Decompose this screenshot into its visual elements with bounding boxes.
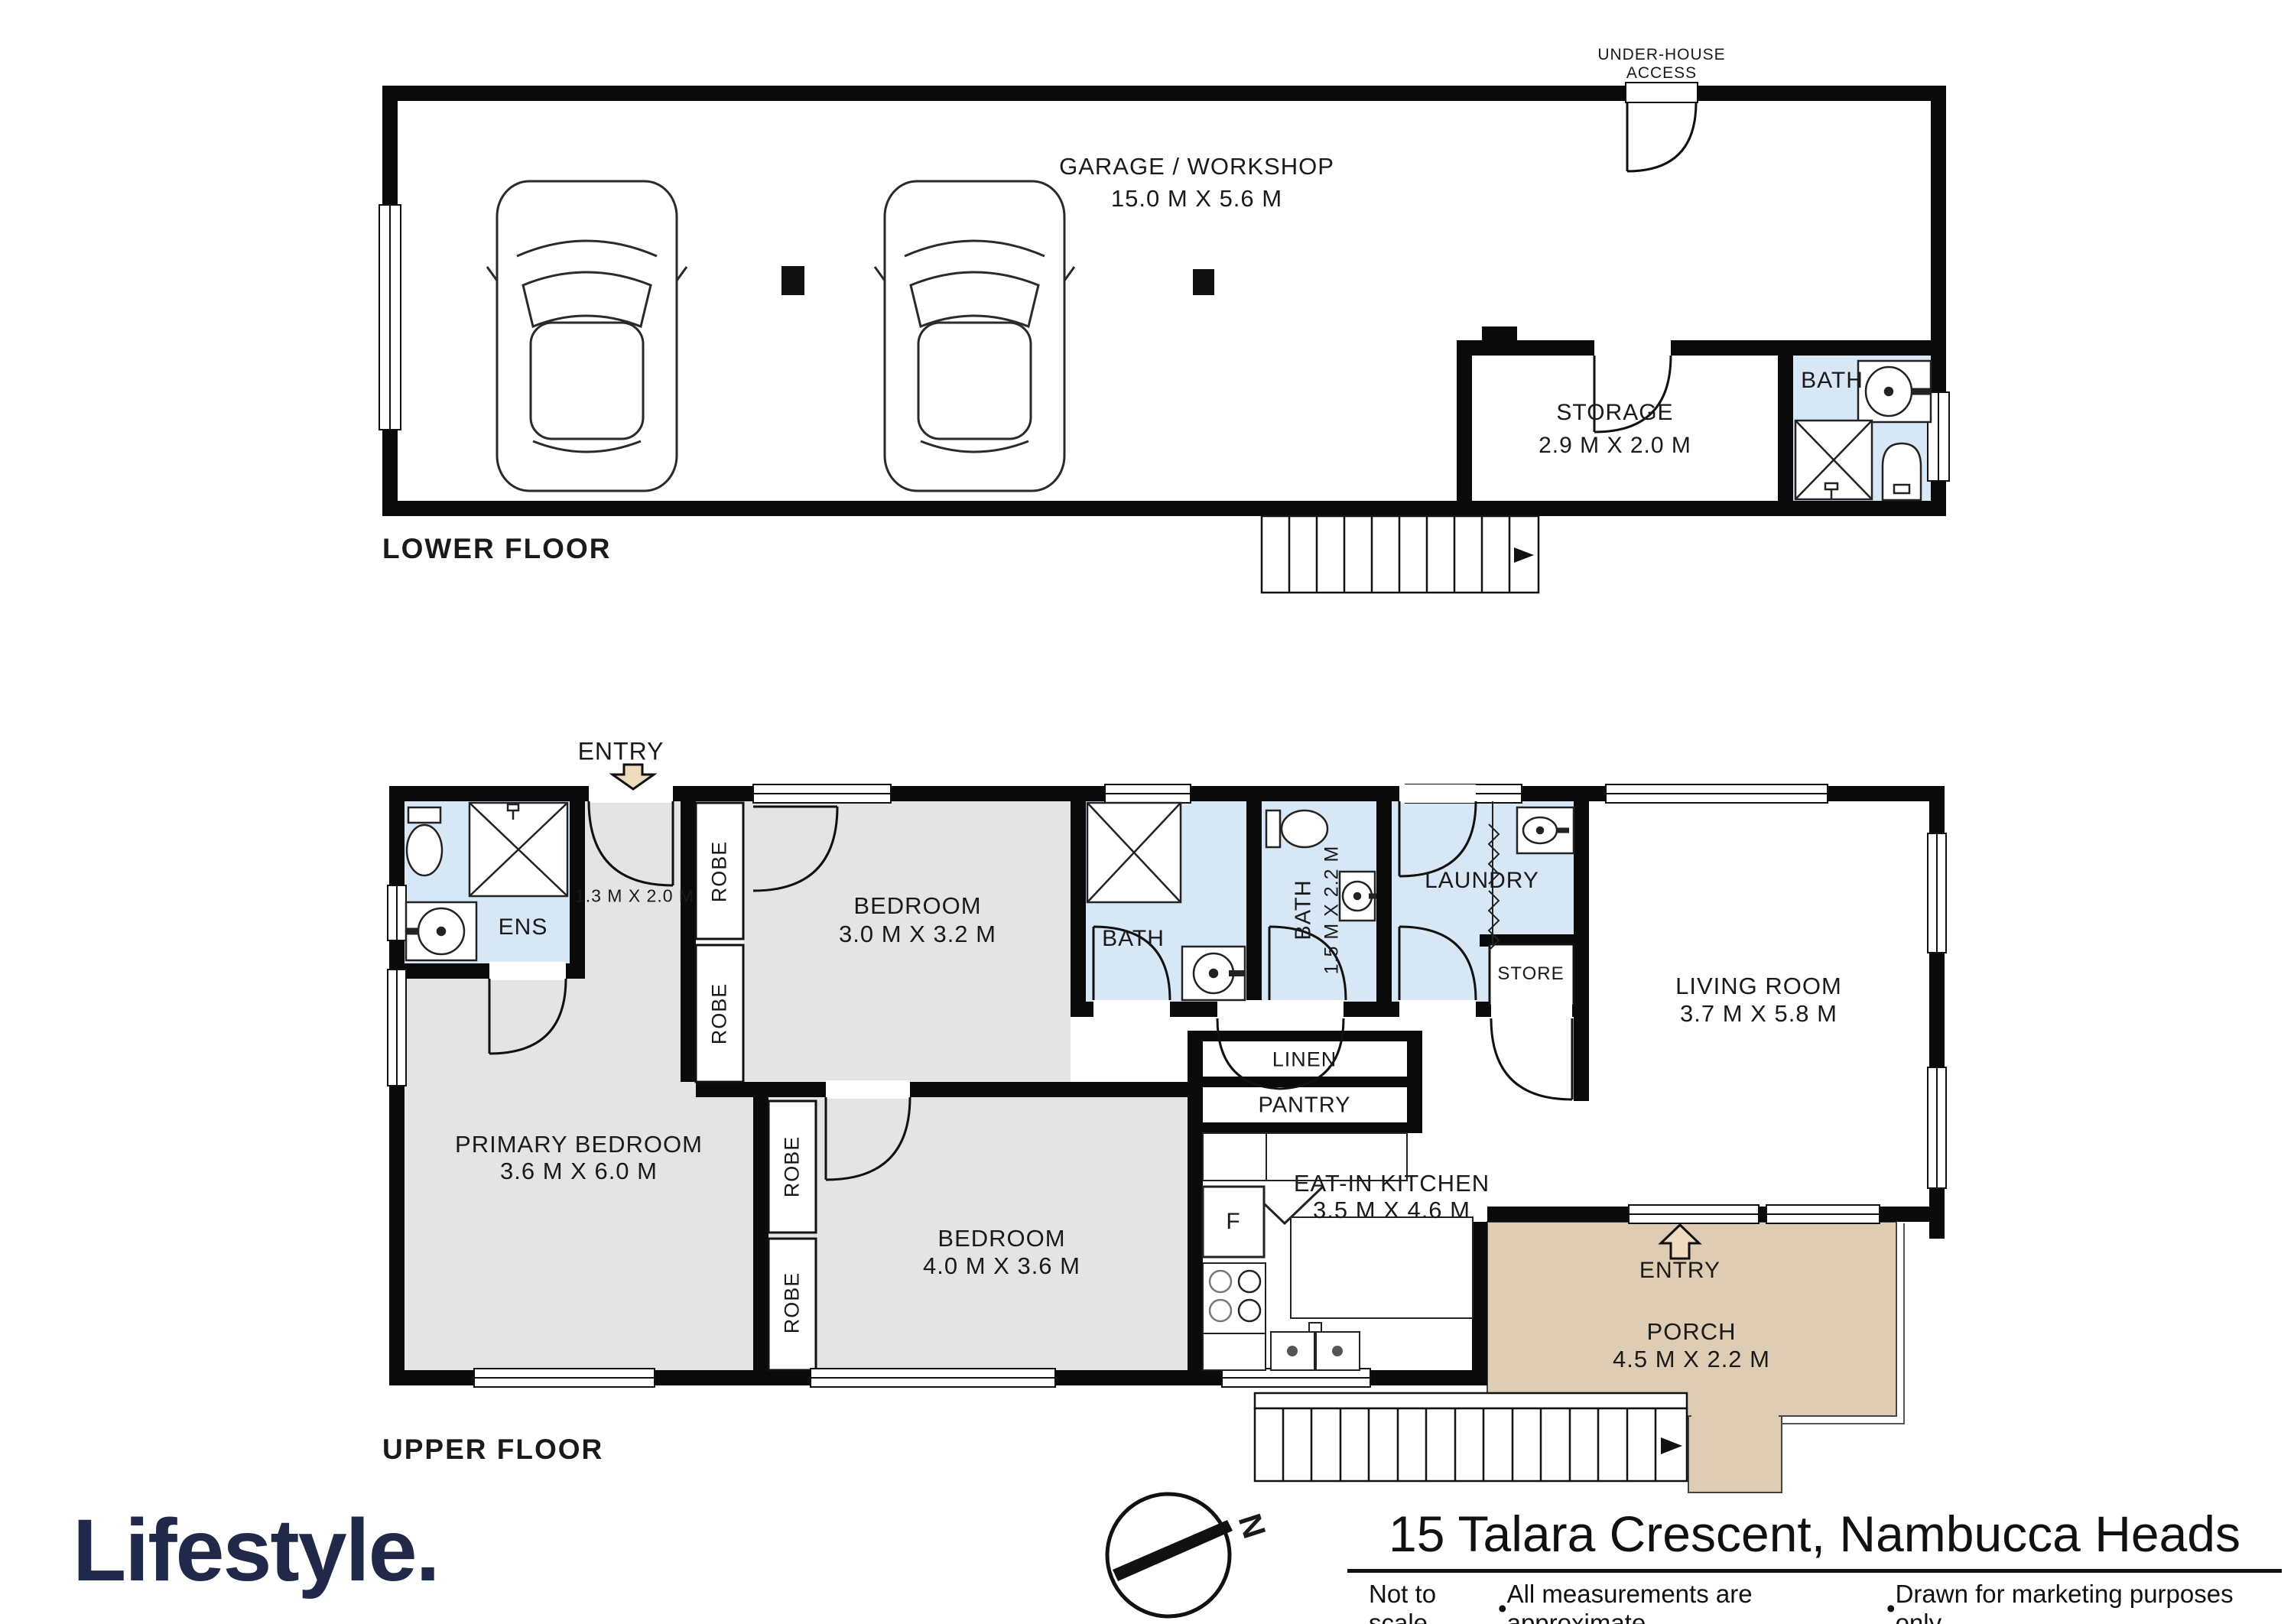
sink-icon bbox=[1517, 807, 1574, 853]
toilet-icon bbox=[1266, 810, 1327, 847]
garage-post bbox=[1193, 269, 1214, 295]
footer-divider bbox=[1347, 1569, 2282, 1573]
brand-logo: Lifestyle. bbox=[73, 1500, 439, 1601]
bath2-label: BATH bbox=[1292, 879, 1317, 940]
bedroom2-dims-label: 4.0 M X 3.6 M bbox=[923, 1252, 1080, 1280]
disclaimer-item: Drawn for marketing purposes only bbox=[1896, 1580, 2275, 1624]
laundry-label: LAUNDRY bbox=[1425, 868, 1539, 894]
bedroom2-name-label: BEDROOM bbox=[937, 1225, 1065, 1252]
upper-floor-plan bbox=[388, 765, 1946, 1492]
entry-label: ENTRY bbox=[578, 738, 664, 766]
porch-walkway bbox=[1688, 1416, 1782, 1492]
porch-dims-label: 4.5 M X 2.2 M bbox=[1613, 1346, 1770, 1373]
porch-walkway-join bbox=[1691, 1411, 1779, 1421]
stairs-icon bbox=[1262, 516, 1539, 593]
stairs-icon bbox=[1255, 1393, 1687, 1481]
lower-floor-title: LOWER FLOOR bbox=[382, 533, 611, 565]
storage-name-label: STORAGE bbox=[1556, 400, 1673, 426]
sink-icon bbox=[1182, 947, 1245, 1000]
car-icon bbox=[875, 181, 1074, 491]
under-house-label-line2: ACCESS bbox=[1626, 64, 1697, 83]
car-icon bbox=[487, 181, 687, 491]
bullet-separator: • bbox=[1886, 1594, 1896, 1623]
fridge-label: F bbox=[1226, 1209, 1240, 1235]
kitchen-name-label: EAT-IN KITCHEN bbox=[1294, 1170, 1490, 1197]
kitchen-sink-icon bbox=[1271, 1323, 1360, 1370]
upper-floor-title: UPPER FLOOR bbox=[382, 1434, 603, 1466]
entry-hall-dims-label: 1.3 M X 2.0 M bbox=[575, 886, 694, 907]
sink-icon bbox=[406, 902, 476, 960]
porch-entry-label: ENTRY bbox=[1639, 1258, 1720, 1284]
primary-bedroom-dims-label: 3.6 M X 6.0 M bbox=[500, 1158, 658, 1185]
porch-name-label: PORCH bbox=[1647, 1318, 1737, 1346]
living-name-label: LIVING ROOM bbox=[1675, 973, 1842, 1000]
store-door-swing bbox=[1491, 1018, 1572, 1099]
stove-icon bbox=[1203, 1263, 1266, 1333]
compass-icon bbox=[1107, 1494, 1233, 1616]
kitchen-dims-label: 3.5 M X 4.6 M bbox=[1313, 1197, 1470, 1224]
under-house-label-line1: UNDER-HOUSE bbox=[1597, 46, 1725, 64]
under-house-door-gap bbox=[1626, 83, 1698, 102]
bath2-dims-label: 1.5 M X 2.2 M bbox=[1321, 846, 1344, 975]
storage-door-gap bbox=[1594, 339, 1671, 357]
disclaimer-item: All measurements are approximate bbox=[1507, 1580, 1886, 1624]
shower-icon bbox=[470, 803, 567, 896]
storage-dims-label: 2.9 M X 2.0 M bbox=[1539, 433, 1691, 459]
robe-label: ROBE bbox=[708, 983, 732, 1045]
bedroom1-name-label: BEDROOM bbox=[853, 892, 981, 920]
shower-icon bbox=[1087, 803, 1181, 902]
toilet-icon bbox=[1883, 443, 1921, 500]
footer-disclaimer: Not to scale • All measurements are appr… bbox=[1369, 1580, 2275, 1624]
pantry-label: PANTRY bbox=[1259, 1093, 1351, 1119]
toilet-icon bbox=[407, 807, 442, 875]
ensuite-label: ENS bbox=[499, 914, 548, 940]
garage-post bbox=[781, 266, 804, 295]
primary-bedroom-name-label: PRIMARY BEDROOM bbox=[455, 1131, 703, 1158]
linen-label: LINEN bbox=[1272, 1048, 1337, 1072]
kitchen-fixtures bbox=[1203, 1133, 1473, 1370]
under-house-door-swing bbox=[1627, 102, 1696, 171]
bath1-label: BATH bbox=[1102, 926, 1165, 952]
store-label: STORE bbox=[1497, 963, 1564, 985]
garage-name-label: GARAGE / WORKSHOP bbox=[1059, 153, 1334, 180]
floorplan-page: GARAGE / WORKSHOP 15.0 M X 5.6 M UNDER-H… bbox=[0, 0, 2294, 1624]
floorplan-drawing bbox=[0, 0, 2294, 1624]
robe-label: ROBE bbox=[781, 1136, 804, 1198]
robe-label: ROBE bbox=[781, 1272, 804, 1334]
living-dims-label: 3.7 M X 5.8 M bbox=[1680, 1000, 1837, 1028]
sink-icon bbox=[1340, 872, 1376, 921]
robe-label: ROBE bbox=[708, 841, 732, 903]
property-address: 15 Talara Crescent, Nambucca Heads bbox=[1347, 1505, 2282, 1563]
sink-icon bbox=[1858, 361, 1931, 422]
kitchen-island bbox=[1291, 1217, 1473, 1318]
garage-dims-label: 15.0 M X 5.6 M bbox=[1111, 185, 1282, 213]
lower-bath-label: BATH bbox=[1801, 368, 1863, 394]
shower-icon bbox=[1795, 421, 1872, 499]
bullet-separator: • bbox=[1498, 1594, 1507, 1623]
bedroom1-dims-label: 3.0 M X 3.2 M bbox=[839, 921, 996, 948]
disclaimer-item: Not to scale bbox=[1369, 1580, 1498, 1624]
